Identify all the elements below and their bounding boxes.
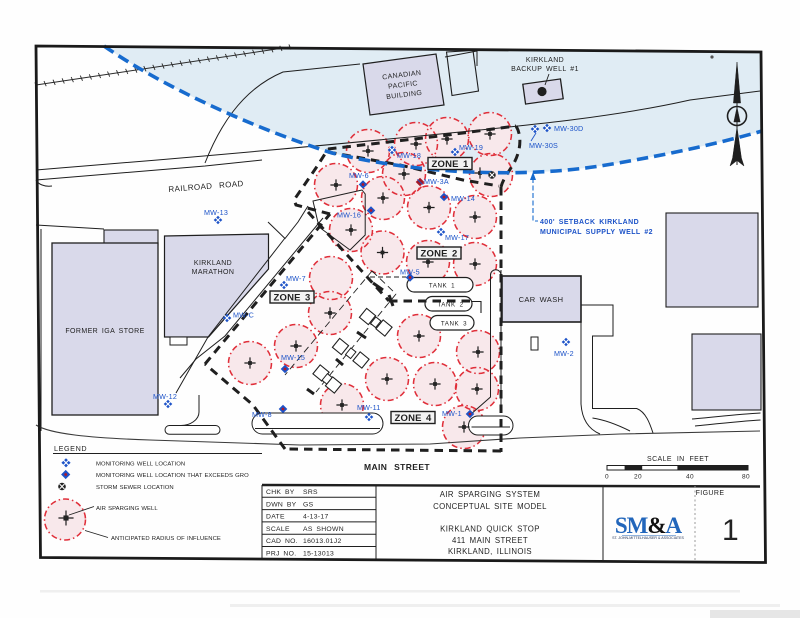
svg-text:MW-5: MW-5 [400, 268, 420, 277]
svg-text:AS SHOWN: AS SHOWN [303, 526, 344, 533]
svg-text:FIGURE: FIGURE [696, 490, 725, 497]
svg-text:TANK 1: TANK 1 [429, 282, 455, 289]
svg-text:SRS: SRS [303, 489, 318, 496]
svg-text:MONITORING WELL LOCATION: MONITORING WELL LOCATION [96, 462, 185, 468]
svg-text:1: 1 [722, 514, 739, 547]
svg-text:15-13013: 15-13013 [303, 551, 334, 558]
svg-text:DWN BY: DWN BY [266, 501, 297, 508]
svg-text:MW-18: MW-18 [397, 151, 421, 160]
svg-text:ANTICIPATED RADIUS OF INFLUENC: ANTICIPATED RADIUS OF INFLUENCE [111, 536, 221, 542]
svg-text:MW-3A: MW-3A [424, 177, 449, 186]
svg-text:KIRKLAND, ILLINOIS: KIRKLAND, ILLINOIS [448, 547, 532, 556]
svg-text:SCALE: SCALE [266, 526, 290, 533]
svg-text:MW-2: MW-2 [554, 349, 574, 358]
svg-text:16013.01J2: 16013.01J2 [303, 538, 342, 545]
svg-text:CHK BY: CHK BY [266, 489, 295, 496]
svg-text:80: 80 [742, 474, 750, 481]
svg-text:DATE: DATE [266, 514, 285, 521]
svg-text:ST. JOHN-MITTELHAUSER & ASSOCI: ST. JOHN-MITTELHAUSER & ASSOCIATES [612, 536, 684, 540]
svg-text:ZONE 4: ZONE 4 [394, 413, 432, 424]
svg-text:MW-14: MW-14 [451, 194, 475, 203]
svg-text:MARATHON: MARATHON [192, 269, 235, 276]
svg-text:CAR WASH: CAR WASH [519, 295, 564, 304]
svg-text:STORM SEWER LOCATION: STORM SEWER LOCATION [96, 485, 174, 491]
svg-text:FORMER IGA STORE: FORMER IGA STORE [65, 328, 144, 335]
svg-text:MW-19: MW-19 [459, 143, 483, 152]
svg-text:ZONE 2: ZONE 2 [420, 249, 457, 260]
svg-text:MW-12: MW-12 [153, 392, 177, 401]
svg-text:MAIN STREET: MAIN STREET [364, 462, 430, 472]
svg-text:PRJ NO.: PRJ NO. [266, 551, 296, 558]
svg-text:MW-11: MW-11 [357, 403, 381, 412]
svg-text:MW-8: MW-8 [252, 410, 272, 419]
svg-text:MW-13: MW-13 [204, 208, 228, 217]
svg-text:GS: GS [303, 501, 314, 508]
svg-text:ZONE 1: ZONE 1 [431, 159, 469, 170]
svg-text:KIRKLAND QUICK STOP: KIRKLAND QUICK STOP [440, 525, 540, 534]
svg-text:MW-30D: MW-30D [554, 124, 583, 133]
svg-text:ZONE 3: ZONE 3 [273, 293, 310, 304]
svg-text:AIR SPARGING SYSTEM: AIR SPARGING SYSTEM [440, 490, 541, 499]
svg-text:MW-30S: MW-30S [529, 141, 558, 150]
svg-text:CONCEPTUAL SITE MODEL: CONCEPTUAL SITE MODEL [433, 502, 547, 511]
svg-text:MW-17: MW-17 [445, 233, 469, 242]
svg-text:MW-7: MW-7 [286, 274, 306, 283]
svg-text:MW-6: MW-6 [349, 171, 369, 180]
svg-text:MW-15: MW-15 [281, 353, 305, 362]
svg-text:KIRKLAND: KIRKLAND [194, 260, 232, 267]
svg-text:4-13-17: 4-13-17 [303, 514, 329, 521]
svg-text:MONITORING WELL LOCATION THAT: MONITORING WELL LOCATION THAT EXCEEDS GR… [96, 473, 249, 479]
svg-text:0: 0 [605, 474, 609, 481]
svg-text:MW-C: MW-C [233, 311, 254, 320]
svg-text:SCALE IN FEET: SCALE IN FEET [647, 456, 709, 463]
svg-text:MUNICIPAL SUPPLY WELL #2: MUNICIPAL SUPPLY WELL #2 [540, 229, 653, 236]
svg-text:CAD NO.: CAD NO. [266, 538, 298, 545]
svg-text:KIRKLAND: KIRKLAND [526, 57, 564, 64]
svg-text:BACKUP WELL #1: BACKUP WELL #1 [511, 66, 579, 73]
svg-text:40: 40 [686, 474, 694, 481]
svg-text:TANK 3: TANK 3 [441, 320, 467, 327]
svg-text:AIR SPARGING WELL: AIR SPARGING WELL [96, 506, 158, 512]
svg-text:400' SETBACK KIRKLAND: 400' SETBACK KIRKLAND [540, 219, 639, 226]
svg-text:MW-16: MW-16 [337, 211, 361, 220]
svg-text:SM&A: SM&A [615, 513, 683, 538]
svg-text:20: 20 [634, 474, 642, 481]
svg-text:MW-1: MW-1 [442, 409, 462, 418]
svg-text:LEGEND: LEGEND [54, 444, 87, 453]
svg-text:411 MAIN STREET: 411 MAIN STREET [452, 536, 528, 545]
